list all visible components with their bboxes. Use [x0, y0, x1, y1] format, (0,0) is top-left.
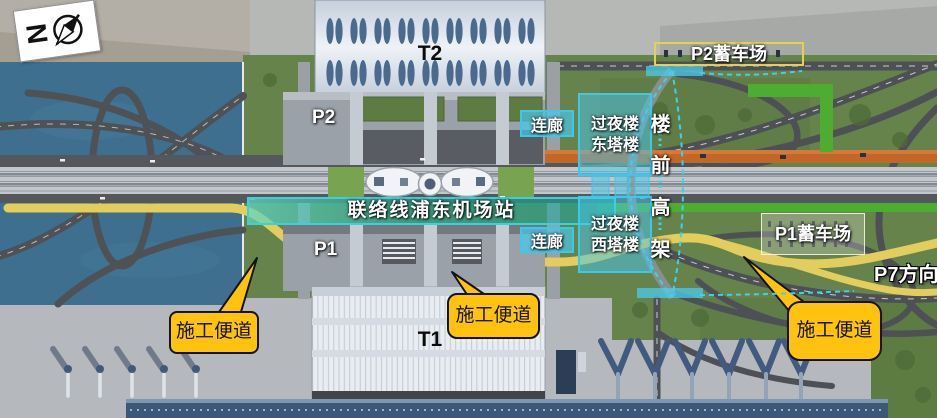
viaduct-char-2: 前: [647, 149, 674, 178]
overnight-west-tower-line2: 西塔楼: [580, 235, 650, 256]
construction-road-callout-east: 施工便道: [787, 301, 882, 361]
overnight-west-tower-line1: 过夜楼: [580, 214, 650, 235]
construction-road-callout-west: 施工便道: [169, 311, 259, 354]
corridor-north-label: 连廊: [520, 110, 574, 137]
overnight-west-tower-box: 过夜楼 西塔楼: [578, 196, 652, 273]
overnight-east-tower-line2: 东塔楼: [580, 135, 650, 156]
terminal-t2-label: T2: [403, 42, 457, 66]
parking-p2-label: P2: [312, 107, 335, 129]
viaduct-char-1: 楼: [647, 108, 674, 137]
north-letter: N: [21, 22, 52, 46]
p2-staging-lot-label: P2蓄车场: [654, 42, 804, 66]
parking-p1-label: P1: [314, 239, 337, 261]
airport-aerial-annotation-map: N T2 T1 P2 P1 联络线浦东机场站 连廊 连廊 过夜楼 东塔楼 过夜楼…: [0, 0, 937, 418]
viaduct-char-3: 高: [647, 191, 674, 220]
station-banner: 联络线浦东机场站: [247, 197, 616, 225]
p1-staging-lot-label: P1蓄车场: [761, 213, 865, 255]
corridor-south-label: 连廊: [520, 227, 574, 253]
overnight-east-tower-line1: 过夜楼: [580, 114, 650, 135]
compass-rose-icon: [45, 7, 90, 52]
p7-direction-label: P7方向: [874, 258, 937, 287]
viaduct-char-4: 架: [647, 233, 674, 262]
construction-road-callout-center: 施工便道: [447, 293, 540, 339]
overnight-east-tower-box: 过夜楼 东塔楼: [578, 93, 652, 176]
